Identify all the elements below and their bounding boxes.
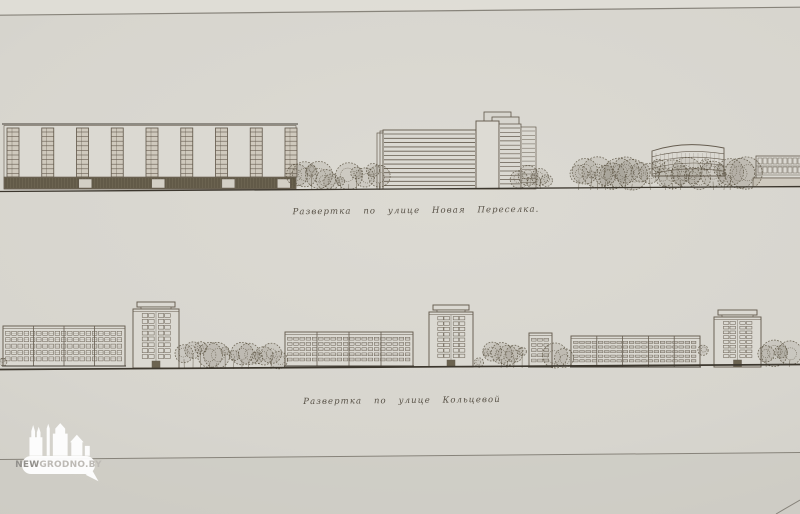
tree-cluster: [758, 340, 800, 367]
caption-koltsevaya: Развертка по улице Кольцевой: [303, 395, 501, 407]
bubble-tail-icon: [86, 471, 99, 485]
elevation-ulitsa-koltsevaya: [0, 302, 800, 370]
newgrodno-watermark: NEWGRODNO.BY: [22, 421, 112, 493]
tree-cluster: [570, 157, 762, 190]
slab-with-stair-strips: [2, 124, 298, 189]
brand-bold: NEW: [15, 460, 39, 470]
brand-rest: GRODNO.BY: [39, 460, 102, 470]
five-story-slab: [2, 326, 126, 366]
watermark-brand: NEWGRODNO.BY: [22, 456, 95, 474]
photographed-drawing-sheet: Развертка по улице Новая Переселка. Разв…: [0, 0, 800, 514]
elevation-drawing: [0, 0, 800, 514]
tree-cluster: [286, 161, 390, 190]
nine-story-tower: [429, 305, 473, 367]
five-story-slab: [570, 336, 701, 367]
tree-cluster: [698, 345, 708, 355]
tree-cluster: [474, 342, 526, 368]
grodno-skyline-icon: [27, 421, 91, 456]
tree-cluster: [175, 342, 287, 369]
elevation-ulitsa-novaya-pereselka: [0, 112, 800, 192]
nine-story-tower: [714, 310, 761, 367]
five-story-slab: [284, 332, 414, 366]
tree-cluster: [543, 343, 574, 368]
nine-story-tower: [133, 302, 179, 368]
